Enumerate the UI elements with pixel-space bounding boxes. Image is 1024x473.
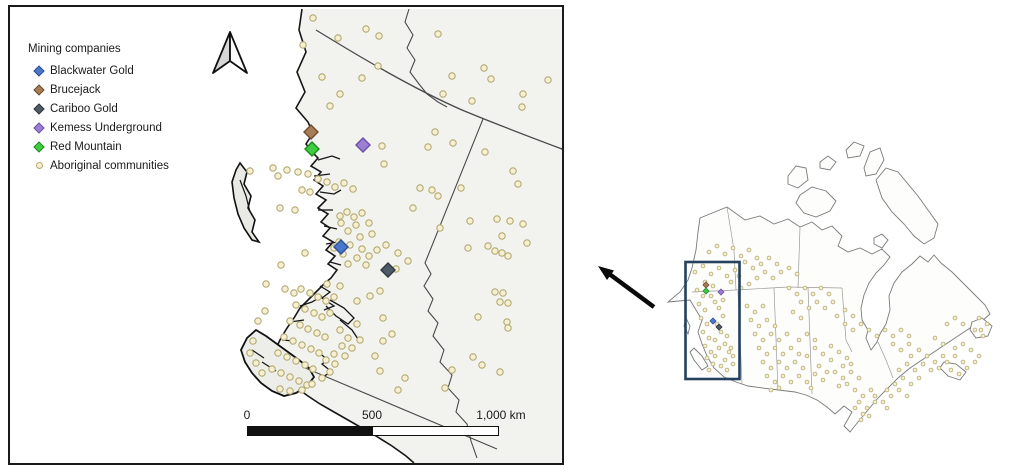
north-arrow-icon: [213, 32, 247, 73]
inset-community-dot: [701, 294, 705, 298]
inset-community-dot: [881, 400, 885, 404]
community-dot: [359, 75, 365, 81]
community-dot: [327, 369, 333, 375]
inset-community-dot: [733, 268, 737, 272]
inset-community-dot: [703, 344, 707, 348]
community-dot: [349, 345, 355, 351]
community-dot: [331, 294, 337, 300]
inset-community-dot: [777, 338, 781, 342]
inset-community-dot: [717, 346, 721, 350]
scale-bar-track: [247, 426, 499, 436]
inset-community-dot: [765, 374, 769, 378]
community-dot: [298, 286, 304, 292]
inset-community-dot: [817, 364, 821, 368]
inset-community-dot: [861, 394, 865, 398]
community-dot: [458, 185, 464, 191]
community-dot: [497, 299, 503, 305]
main-map-frame: Mining companies Blackwater GoldBrucejac…: [8, 5, 564, 465]
community-dot: [545, 77, 551, 83]
community-dot: [297, 322, 303, 328]
inset-community-dot: [857, 376, 861, 380]
inset-community-dot: [885, 406, 889, 410]
inset-community-dot: [755, 256, 759, 260]
inset-community-dot: [773, 346, 777, 350]
inset-community-dot: [945, 360, 949, 364]
inset-community-dot: [713, 300, 717, 304]
community-dot: [270, 165, 276, 171]
inset-community-dot: [805, 332, 809, 336]
community-dot: [497, 369, 503, 375]
inset-community-dot: [809, 386, 813, 390]
community-dot: [342, 353, 348, 359]
inset-community-dot: [849, 362, 853, 366]
community-dot: [395, 250, 401, 256]
community-dot: [354, 255, 360, 261]
community-dot: [369, 231, 375, 237]
community-dot: [366, 253, 372, 259]
legend-item: Aboriginal communities: [28, 156, 169, 175]
community-dot: [500, 290, 506, 296]
inset-community-dot: [725, 368, 729, 372]
community-dot: [465, 245, 471, 251]
community-dot: [302, 250, 308, 256]
community-dot: [296, 378, 302, 384]
inset-community-dot: [693, 270, 697, 274]
community-dot: [247, 350, 253, 356]
inset-community-dot: [695, 288, 699, 292]
community-dot: [377, 368, 383, 374]
dot-icon: [28, 162, 50, 169]
inset-community-dot: [807, 306, 811, 310]
community-dot: [277, 205, 283, 211]
community-dot: [299, 342, 305, 348]
legend-item-label: Red Mountain: [50, 141, 122, 153]
inset-community-dot: [829, 358, 833, 362]
community-dot: [377, 288, 383, 294]
inset-community-dot: [851, 314, 855, 318]
community-dot: [363, 262, 369, 268]
legend-title: Mining companies: [28, 43, 169, 55]
legend-item: Kemess Underground: [28, 118, 169, 137]
inset-community-dot: [909, 382, 913, 386]
community-dot: [380, 338, 386, 344]
inset-community-dot: [917, 348, 921, 352]
community-dot: [305, 171, 311, 177]
inset-community-dot: [909, 354, 913, 358]
community-dot: [295, 169, 301, 175]
community-dot: [282, 286, 288, 292]
inset-community-dot: [707, 336, 711, 340]
inset-community-dot: [851, 328, 855, 332]
community-dot: [353, 222, 359, 228]
inset-community-dot: [849, 370, 853, 374]
inset-community-dot: [759, 262, 763, 266]
inset-community-dot: [773, 324, 777, 328]
inset-community-dot: [717, 306, 721, 310]
inset-community-dot: [801, 366, 805, 370]
inset-community-dot: [835, 314, 839, 318]
inset-community-dot: [779, 270, 783, 274]
inset-community-dot: [709, 294, 713, 298]
inset-community-dot: [743, 260, 747, 264]
inset-community-dot: [787, 286, 791, 290]
community-dot: [311, 310, 317, 316]
diamond-icon: [28, 105, 50, 113]
inset-community-dot: [781, 352, 785, 356]
inset-community-dot: [843, 322, 847, 326]
inset-community-dot: [883, 328, 887, 332]
inset-community-dot: [719, 330, 723, 334]
community-dot: [253, 360, 259, 366]
community-dot: [338, 220, 344, 226]
community-dot: [366, 220, 372, 226]
inset-community-dot: [829, 344, 833, 348]
inset-community-dot: [837, 350, 841, 354]
community-dot: [467, 218, 473, 224]
inset-community-dot: [711, 362, 715, 366]
community-dot: [481, 65, 487, 71]
inset-community-dot: [813, 346, 817, 350]
scale-label: 0: [244, 408, 251, 422]
legend-item: Blackwater Gold: [28, 61, 169, 80]
inset-community-dot: [805, 380, 809, 384]
inset-community-dot: [941, 342, 945, 346]
inset-community-dot: [961, 322, 965, 326]
community-dot: [284, 167, 290, 173]
inset-community-dot: [721, 314, 725, 318]
legend-item-label: Aboriginal communities: [50, 160, 169, 172]
inset-community-dot: [705, 356, 709, 360]
community-dot: [316, 350, 322, 356]
community-dot: [287, 374, 293, 380]
inset-community-dot: [803, 286, 807, 290]
inset-community-dot: [725, 274, 729, 278]
community-dot: [310, 366, 316, 372]
community-dot: [331, 351, 337, 357]
community-dot: [255, 318, 261, 324]
community-dot: [345, 228, 351, 234]
legend-item: Cariboo Gold: [28, 99, 169, 118]
community-dot: [307, 290, 313, 296]
inset-community-dot: [709, 350, 713, 354]
community-dot: [287, 388, 293, 394]
community-dot: [337, 213, 343, 219]
scale-bar: 05001,000 km: [237, 408, 517, 448]
community-dot: [284, 354, 290, 360]
legend-item-label: Kemess Underground: [50, 122, 162, 134]
inset-community-dot: [799, 316, 803, 320]
inset-community-dot: [921, 362, 925, 366]
community-dot: [302, 362, 308, 368]
inset-community-dot: [729, 346, 733, 350]
inset-community-dot: [715, 244, 719, 248]
community-dot: [479, 362, 485, 368]
inset-community-dot: [819, 286, 823, 290]
inset-community-dot: [713, 338, 717, 342]
inset-community-dot: [773, 380, 777, 384]
community-dot: [435, 31, 441, 37]
inset-community-dot: [953, 316, 957, 320]
community-dot: [504, 319, 510, 325]
inset-community-dot: [761, 304, 765, 308]
community-dot: [354, 321, 360, 327]
community-dot: [429, 187, 435, 193]
community-dot: [308, 346, 314, 352]
inset-community-dot: [723, 358, 727, 362]
community-dot: [402, 375, 408, 381]
diamond-icon: [28, 67, 50, 75]
inset-community-dot: [899, 328, 903, 332]
inset-community-dot: [891, 342, 895, 346]
inset-community-dot: [771, 276, 775, 280]
community-dot: [432, 129, 438, 135]
community-dot: [323, 357, 329, 363]
inset-community-dot: [913, 368, 917, 372]
inset-community-dot: [703, 308, 707, 312]
inset-community-dot: [979, 328, 983, 332]
inset-community-dot: [875, 334, 879, 338]
community-dot: [475, 314, 481, 320]
community-dot: [381, 161, 387, 167]
inset-community-dot: [907, 342, 911, 346]
community-dot: [363, 26, 369, 32]
community-dot: [359, 246, 365, 252]
inset-community-dot: [937, 366, 941, 370]
inset-community-dot: [977, 316, 981, 320]
community-dot: [354, 298, 360, 304]
inset-community-dot: [885, 388, 889, 392]
inset-community-dot: [765, 352, 769, 356]
inset-community-dot: [873, 394, 877, 398]
inset-community-dot: [941, 354, 945, 358]
community-dot: [310, 15, 316, 21]
map-legend: Mining companies Blackwater GoldBrucejac…: [28, 43, 169, 175]
land-area: [270, 9, 562, 463]
community-dot: [440, 91, 446, 97]
inset-community-dot: [905, 394, 909, 398]
inset-community-dot: [953, 346, 957, 350]
inset-community-dot: [867, 414, 871, 418]
community-dot: [350, 186, 356, 192]
inset-community-dot: [717, 266, 721, 270]
community-dot: [376, 33, 382, 39]
inset-community-dot: [701, 330, 705, 334]
community-dot: [269, 366, 275, 372]
community-dot: [323, 298, 329, 304]
inset-community-dot: [969, 348, 973, 352]
inset-community-dot: [787, 266, 791, 270]
inset-community-dot: [785, 366, 789, 370]
community-dot: [510, 168, 516, 174]
inset-community-dot: [831, 300, 835, 304]
community-dot: [344, 209, 350, 215]
inset-community-dot: [723, 252, 727, 256]
inset-community-dot: [721, 298, 725, 302]
community-dot: [277, 386, 283, 392]
scale-label: 1,000 km: [476, 408, 525, 422]
inset-community-dot: [873, 400, 877, 404]
community-dot: [293, 302, 299, 308]
inset-community-dot: [757, 346, 761, 350]
inset-community-dot: [731, 362, 735, 366]
community-dot: [324, 281, 330, 287]
inset-community-dot: [867, 328, 871, 332]
community-dot: [488, 76, 494, 82]
inset-community-dot: [705, 322, 709, 326]
community-dot: [520, 91, 526, 97]
community-dot: [357, 234, 363, 240]
inset-community-dot: [837, 384, 841, 388]
inset-community-dot: [933, 360, 937, 364]
community-dot: [524, 240, 530, 246]
inset-community-dot: [965, 366, 969, 370]
inset-community-dot: [985, 322, 989, 326]
scale-segment-filled: [248, 427, 373, 435]
community-dot: [259, 370, 265, 376]
inset-community-dot: [865, 406, 869, 410]
inset-community-dot: [981, 334, 985, 338]
canada-mainland: [668, 207, 990, 432]
inset-community-dot: [701, 264, 705, 268]
community-dot: [442, 385, 448, 391]
inset-community-dot: [747, 248, 751, 252]
inset-community-dot: [753, 310, 757, 314]
community-dot: [492, 289, 498, 295]
community-dot: [482, 149, 488, 155]
community-dot: [322, 334, 328, 340]
community-dot: [339, 343, 345, 349]
inset-community-dot: [769, 332, 773, 336]
community-dot: [332, 184, 338, 190]
community-dot: [278, 262, 284, 268]
inset-community-dot: [869, 388, 873, 392]
community-dot: [319, 74, 325, 80]
community-dot: [319, 375, 325, 381]
inset-community-dot: [891, 334, 895, 338]
community-dot: [505, 300, 511, 306]
inset-community-dot: [753, 332, 757, 336]
inset-community-dot: [945, 322, 949, 326]
community-dot: [299, 387, 305, 393]
community-dot: [319, 314, 325, 320]
community-dot: [520, 221, 526, 227]
community-dot: [293, 358, 299, 364]
diamond-icon: [28, 143, 50, 151]
inset-community-dot: [821, 378, 825, 382]
legend-item-label: Brucejack: [50, 84, 101, 96]
community-dot: [315, 176, 321, 182]
community-dot: [309, 381, 315, 387]
community-dot: [275, 173, 281, 179]
community-dot: [292, 207, 298, 213]
map-figure: Mining companies Blackwater GoldBrucejac…: [0, 0, 1024, 473]
inset-community-dot: [707, 250, 711, 254]
inset-community-dot: [889, 394, 893, 398]
community-dot: [485, 243, 491, 249]
community-dot: [515, 181, 521, 187]
community-dot: [383, 242, 389, 248]
inset-community-dot: [749, 318, 753, 322]
inset-community-dot: [961, 360, 965, 364]
legend-item-label: Blackwater Gold: [50, 65, 134, 77]
diamond-icon: [28, 86, 50, 94]
haida-gwaii-islands: [232, 163, 259, 242]
community-dot: [345, 261, 351, 267]
inset-community-dot: [929, 368, 933, 372]
inset-community-dot: [853, 406, 857, 410]
legend-item: Brucejack: [28, 80, 169, 99]
scale-label: 500: [362, 408, 382, 422]
community-dot: [287, 318, 293, 324]
inset-community-dot: [827, 292, 831, 296]
inset-community-dot: [757, 324, 761, 328]
inset-community-dot: [799, 300, 803, 304]
inset-community-dot: [813, 372, 817, 376]
community-dot: [337, 283, 343, 289]
inset-community-dot: [905, 362, 909, 366]
inset-community-dot: [845, 382, 849, 386]
inset-community-dot: [727, 350, 731, 354]
community-dot: [290, 338, 296, 344]
community-dot: [341, 180, 347, 186]
community-dot: [324, 179, 330, 185]
inset-community-dot: [767, 256, 771, 260]
inset-community-dot: [729, 280, 733, 284]
community-dot: [299, 187, 305, 193]
inset-community-dot: [793, 360, 797, 364]
community-dot: [450, 140, 456, 146]
inset-community-dot: [843, 308, 847, 312]
community-dot: [425, 144, 431, 150]
inset-community-dot: [797, 352, 801, 356]
canada-inset-map: [575, 128, 1024, 468]
community-dot: [327, 310, 333, 316]
inset-community-dot: [763, 270, 767, 274]
community-dot: [367, 293, 373, 299]
community-dot: [332, 361, 338, 367]
inset-community-dot: [755, 276, 759, 280]
inset-community-dot: [853, 388, 857, 392]
community-dot: [327, 103, 333, 109]
community-dot: [281, 334, 287, 340]
community-dot: [305, 326, 311, 332]
community-dot: [410, 205, 416, 211]
inset-community-dot: [725, 334, 729, 338]
community-dot: [351, 214, 357, 220]
community-dot: [395, 387, 401, 393]
community-dot: [499, 250, 505, 256]
inset-community-dot: [719, 364, 723, 368]
inset-community-dot: [797, 374, 801, 378]
community-dot: [250, 338, 256, 344]
inset-community-dot: [781, 374, 785, 378]
inset-community-dot: [897, 388, 901, 392]
inset-community-dot: [731, 354, 735, 358]
community-dot: [499, 233, 505, 239]
community-dot: [470, 354, 476, 360]
community-dot: [335, 35, 341, 41]
community-dot: [379, 143, 385, 149]
inset-community-dot: [893, 382, 897, 386]
community-dot: [449, 73, 455, 79]
inset-community-dot: [901, 376, 905, 380]
community-dot: [337, 91, 343, 97]
scale-segment-empty: [373, 427, 498, 435]
inset-community-dot: [845, 356, 849, 360]
community-dot: [278, 370, 284, 376]
inset-community-dot: [899, 348, 903, 352]
inset-community-dot: [811, 292, 815, 296]
